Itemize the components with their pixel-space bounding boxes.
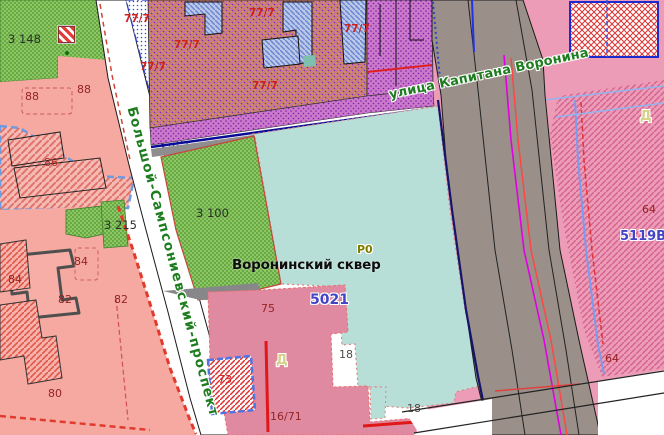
red-thick-divider — [266, 341, 268, 432]
house-75-label: 75 — [261, 303, 275, 314]
landmark-icon — [58, 26, 75, 43]
house-84-b-label: 84 — [8, 274, 22, 285]
teal-blob — [303, 55, 316, 67]
house-88-a-label: 88 — [25, 91, 39, 102]
zone-d-center-label: Д — [276, 354, 288, 367]
point-marker-icon — [65, 51, 69, 55]
zone-code-r0: Р0 — [357, 244, 373, 255]
parcel-3100-label: 3 100 — [196, 208, 229, 220]
lot-777-label-3: 77/7 — [174, 40, 200, 51]
park-notch — [370, 387, 386, 419]
house-18-a-label: 18 — [339, 349, 353, 360]
lot-777-label-5: 77/7 — [252, 81, 278, 92]
house-18-b-label: 18 — [407, 403, 421, 414]
lot-777-label-4: 77/7 — [140, 62, 166, 73]
lot-777-label-2: 77/7 — [249, 8, 275, 19]
lot-777-label-6: 77/7 — [344, 24, 370, 35]
house-64-b-label: 64 — [605, 353, 619, 364]
green-patch-1 — [66, 206, 104, 238]
lot-number-5021: 5021 — [310, 293, 349, 307]
lot-number-5119v: 5119В — [620, 230, 664, 243]
building-blue-3 — [262, 36, 300, 68]
house-88-b-label: 88 — [77, 84, 91, 95]
house-16-71-label: 16/71 — [270, 411, 302, 422]
house-80-label: 80 — [48, 388, 62, 399]
lot-777-label-1: 77/7 — [124, 14, 150, 25]
house-73-label: 73 — [218, 374, 232, 385]
house-86-label: 86 — [44, 157, 58, 168]
map-canvas[interactable]: улица Капитана Воронина Большой-Сампсони… — [0, 0, 664, 435]
zone-d-right-label: Д — [640, 110, 652, 123]
house-84-a-label: 84 — [74, 256, 88, 267]
house-82-a-label: 82 — [58, 294, 72, 305]
park-name-label: Воронинский сквер — [232, 259, 381, 273]
house-64-a-label: 64 — [642, 204, 656, 215]
house-82-b-label: 82 — [114, 294, 128, 305]
parcel-3148-label: 3 148 — [8, 34, 41, 46]
parcel-3215-label: 3 215 — [104, 220, 137, 232]
